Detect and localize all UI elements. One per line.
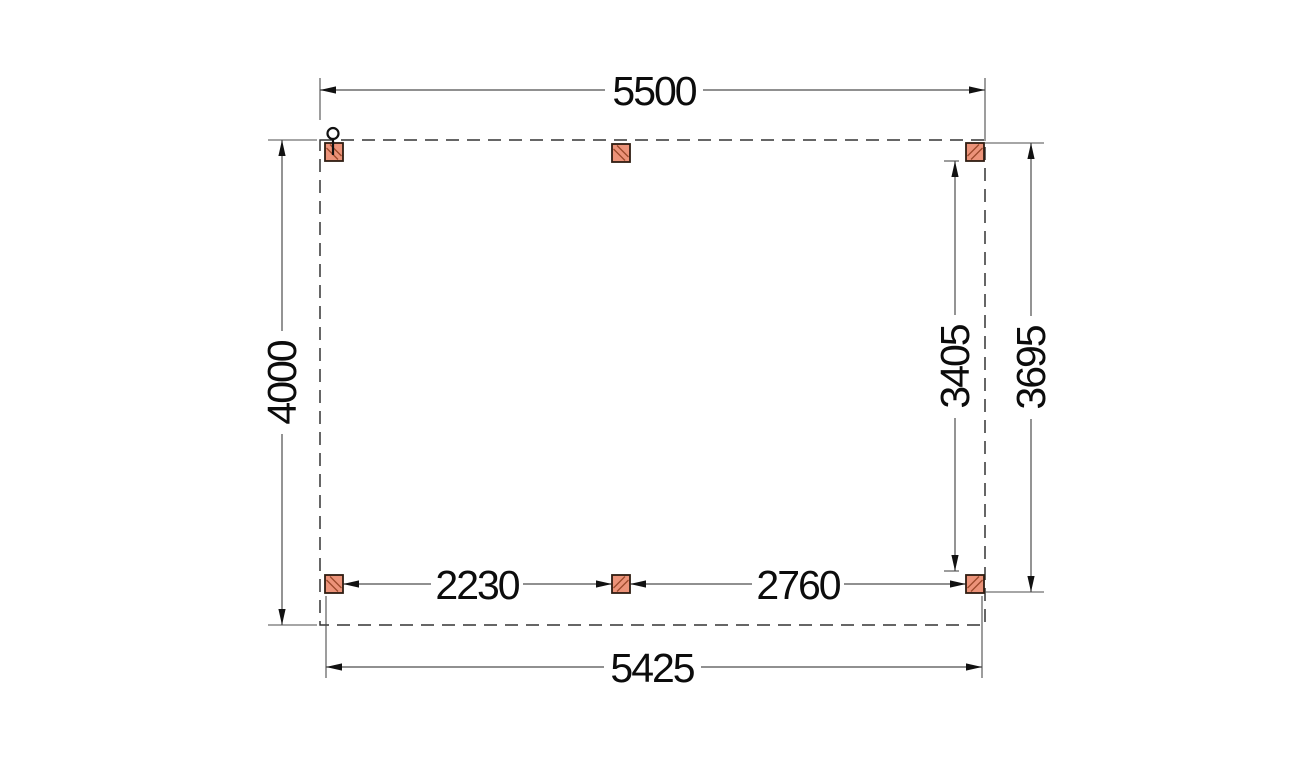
dim-label-right-inner: 3405 xyxy=(932,324,978,408)
dim-label-bottom-left-bay: 2230 xyxy=(435,562,519,608)
dim-label-top-width: 5500 xyxy=(612,68,696,114)
dimension-top-width: 5500 xyxy=(320,68,985,141)
post-bottom-right xyxy=(966,575,984,593)
veranda-plan-drawing: 5500 4000 3405 3695 2230 2760 xyxy=(0,0,1312,762)
roof-outline xyxy=(320,140,985,625)
dim-label-bottom-right-bay: 2760 xyxy=(756,562,840,608)
posts xyxy=(325,143,984,593)
dimension-right-outer-height: 3695 xyxy=(984,143,1054,592)
dimension-bottom-right-bay: 2760 xyxy=(630,562,966,608)
post-bottom-left xyxy=(325,575,343,593)
dimension-left-height: 4000 xyxy=(259,140,317,625)
dim-label-bottom-width: 5425 xyxy=(610,645,694,691)
post-bottom-middle xyxy=(612,575,630,593)
dimension-bottom-width: 5425 xyxy=(326,596,982,691)
dimension-bottom-left-bay: 2230 xyxy=(343,562,612,608)
post-top-right xyxy=(966,143,984,161)
post-top-middle xyxy=(612,144,630,162)
dim-label-right-outer: 3695 xyxy=(1008,325,1054,409)
dim-label-left-height: 4000 xyxy=(259,340,305,424)
dimension-right-inner-height: 3405 xyxy=(932,161,978,571)
plan-canvas: 5500 4000 3405 3695 2230 2760 xyxy=(0,0,1312,762)
